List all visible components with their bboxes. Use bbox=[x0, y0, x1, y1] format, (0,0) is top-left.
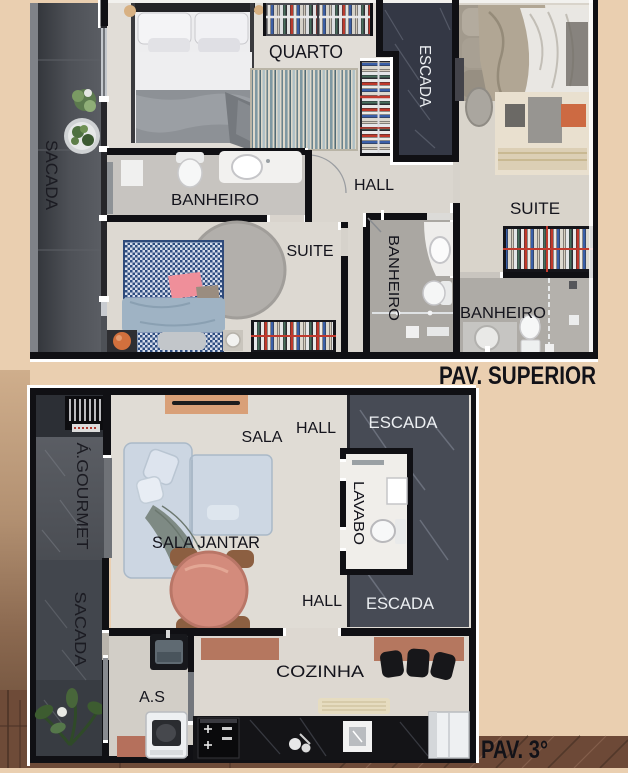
svg-text:ESCADA: ESCADA bbox=[369, 413, 439, 432]
svg-text:SACADA: SACADA bbox=[42, 140, 61, 211]
svg-text:ESCADA: ESCADA bbox=[416, 45, 433, 107]
svg-text:HALL: HALL bbox=[302, 593, 342, 610]
svg-text:HALL: HALL bbox=[296, 420, 336, 437]
svg-text:SALA: SALA bbox=[242, 429, 283, 446]
svg-text:ESCADA: ESCADA bbox=[366, 594, 435, 613]
svg-text:A.S: A.S bbox=[139, 689, 165, 706]
svg-text:PAV. 3°: PAV. 3° bbox=[481, 736, 548, 764]
svg-text:BANHEIRO: BANHEIRO bbox=[460, 305, 546, 322]
svg-text:SUITE: SUITE bbox=[510, 199, 560, 218]
svg-text:SACADA: SACADA bbox=[71, 592, 88, 667]
svg-text:QUARTO: QUARTO bbox=[269, 42, 343, 62]
svg-text:SALA JANTAR: SALA JANTAR bbox=[152, 533, 260, 552]
svg-text:COZINHA: COZINHA bbox=[276, 662, 365, 681]
svg-text:Á.GOURMET: Á.GOURMET bbox=[73, 443, 92, 550]
svg-text:BANHEIRO: BANHEIRO bbox=[385, 235, 402, 321]
svg-text:BANHEIRO: BANHEIRO bbox=[171, 192, 259, 209]
svg-text:LAVABO: LAVABO bbox=[350, 481, 367, 545]
svg-text:HALL: HALL bbox=[354, 177, 394, 194]
svg-text:SUITE: SUITE bbox=[286, 243, 333, 260]
